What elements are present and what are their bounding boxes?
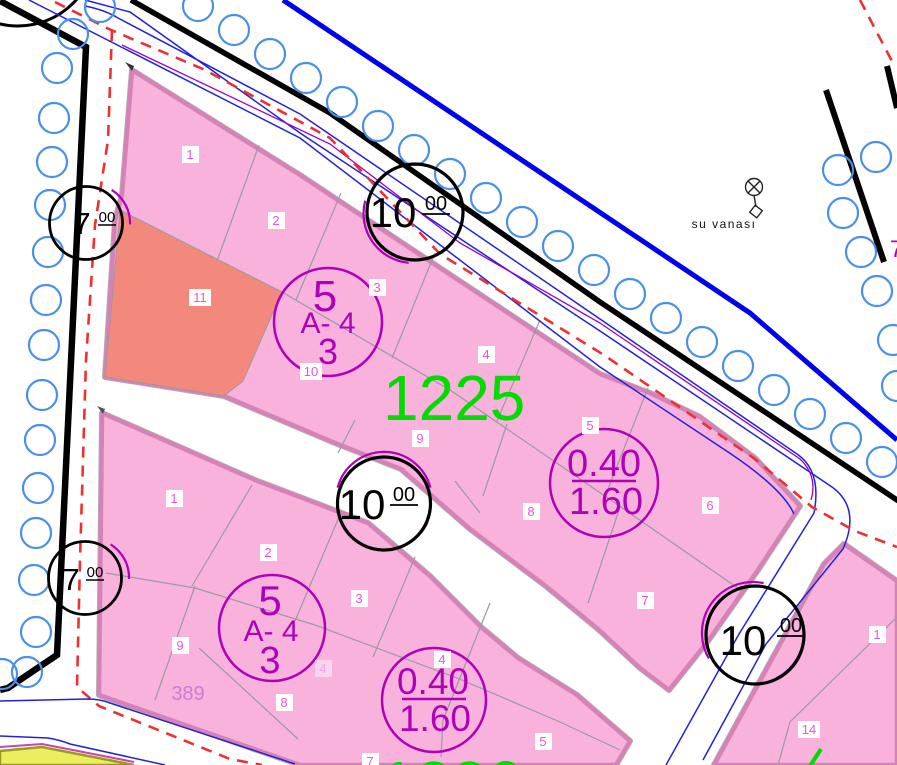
svg-text:8: 8 <box>527 504 534 519</box>
svg-text:10: 10 <box>370 189 417 236</box>
svg-text:00: 00 <box>393 484 415 506</box>
svg-text:3: 3 <box>373 280 380 295</box>
svg-text:su vanası: su vanası <box>692 217 757 231</box>
svg-text:7: 7 <box>73 206 90 241</box>
svg-text:0.40: 0.40 <box>397 661 469 702</box>
svg-text:7: 7 <box>641 593 648 608</box>
svg-text:5: 5 <box>539 734 546 749</box>
svg-text:00: 00 <box>780 615 802 637</box>
svg-text:1225: 1225 <box>383 362 525 434</box>
svg-text:3: 3 <box>259 640 280 682</box>
svg-text:4: 4 <box>482 347 489 362</box>
svg-text:4: 4 <box>438 652 445 667</box>
svg-text:1: 1 <box>186 147 193 162</box>
svg-text:1226: 1226 <box>380 748 522 765</box>
svg-text:00: 00 <box>425 193 447 215</box>
svg-text:9: 9 <box>176 638 183 653</box>
svg-text:2: 2 <box>264 545 271 560</box>
svg-text:5: 5 <box>586 418 593 433</box>
svg-text:389: 389 <box>171 683 204 705</box>
svg-text:10: 10 <box>339 481 386 528</box>
svg-text:14: 14 <box>802 722 816 737</box>
svg-text:00: 00 <box>87 564 104 581</box>
svg-text:00: 00 <box>99 209 116 226</box>
svg-text:4: 4 <box>319 661 326 676</box>
svg-text:1: 1 <box>170 491 177 506</box>
svg-text:0.40: 0.40 <box>567 443 641 485</box>
svg-text:3: 3 <box>355 591 362 606</box>
svg-text:10: 10 <box>720 617 767 664</box>
svg-text:2: 2 <box>272 213 279 228</box>
svg-text:8: 8 <box>280 695 287 710</box>
svg-text:7: 7 <box>366 754 373 765</box>
svg-text:7: 7 <box>62 562 79 597</box>
svg-text:9: 9 <box>416 431 423 446</box>
svg-text:1.60: 1.60 <box>399 698 471 739</box>
svg-text:1: 1 <box>873 627 880 642</box>
svg-text:7: 7 <box>890 236 897 263</box>
svg-text:6: 6 <box>706 498 713 513</box>
svg-text:10: 10 <box>304 364 318 379</box>
svg-text:11: 11 <box>193 290 207 305</box>
svg-text:1.60: 1.60 <box>569 481 643 523</box>
